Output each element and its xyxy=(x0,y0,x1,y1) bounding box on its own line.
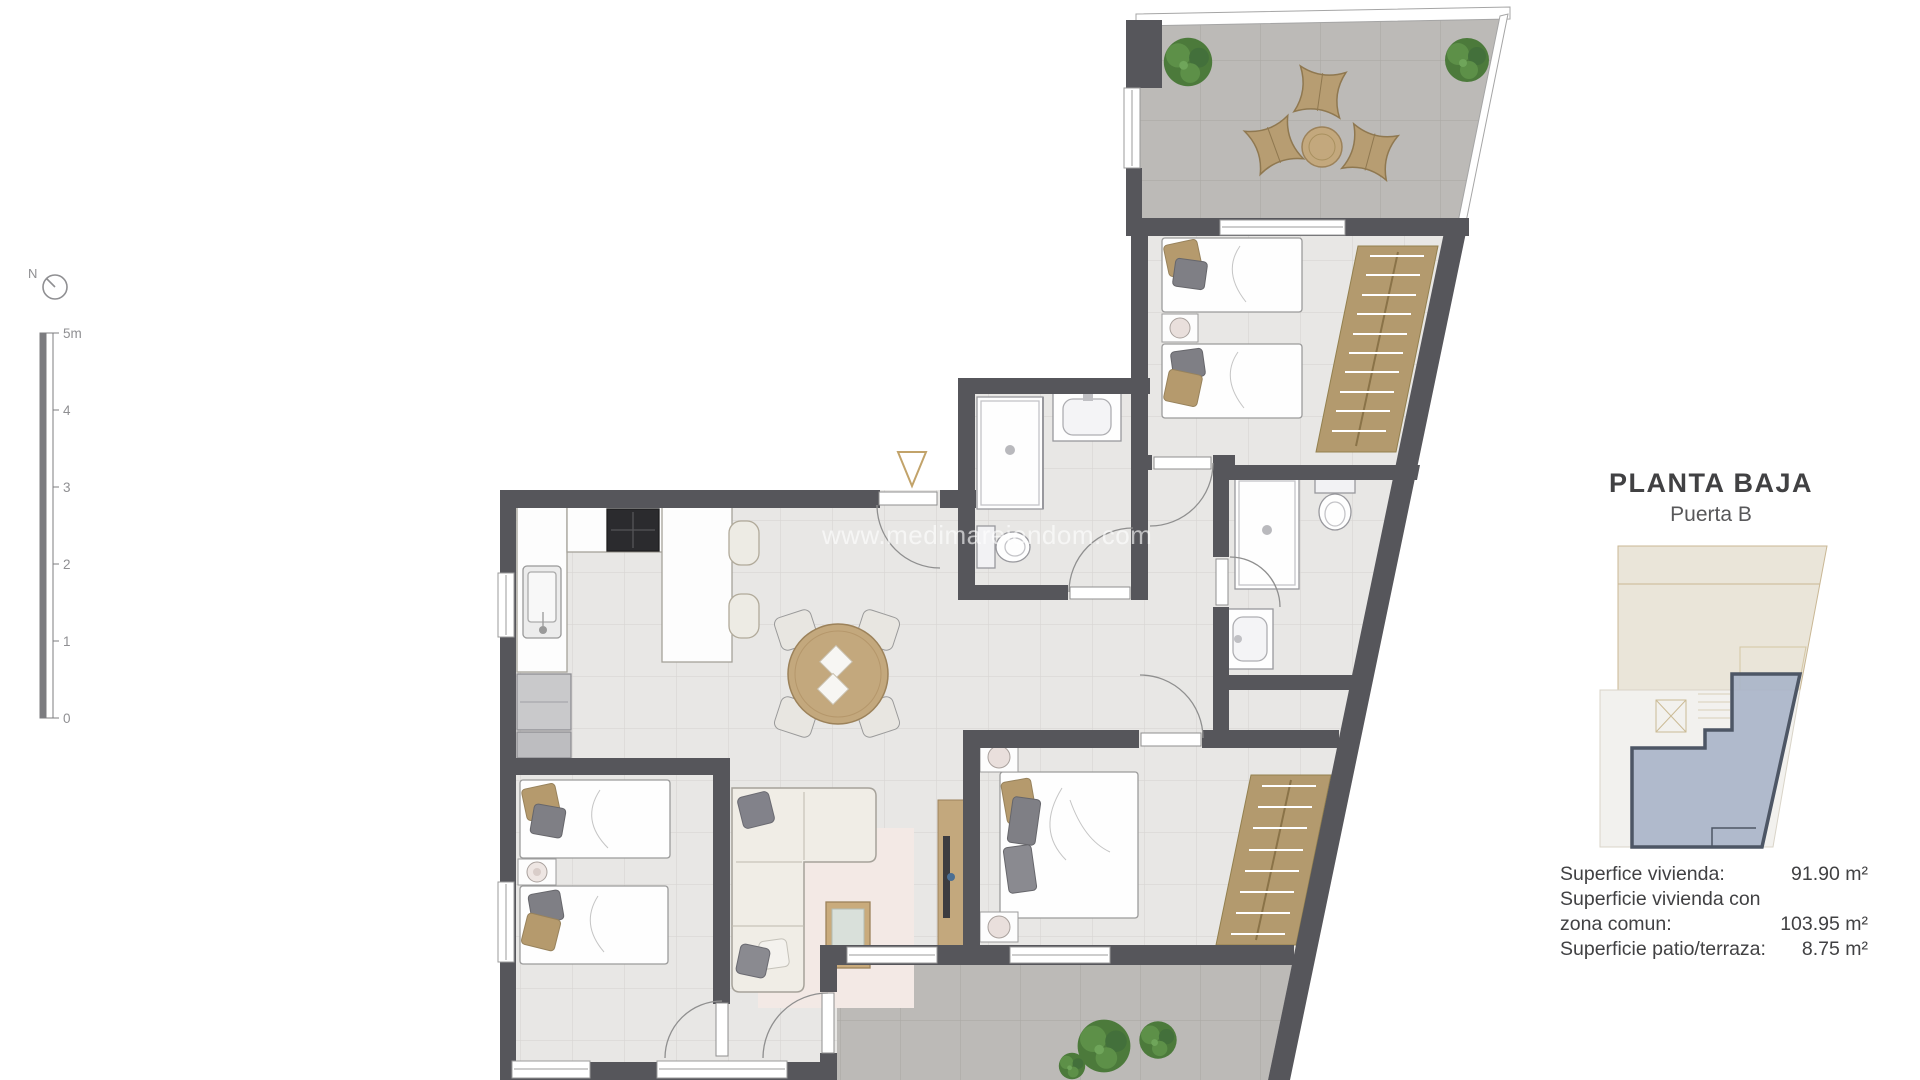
wall xyxy=(820,1053,837,1080)
faucet-icon xyxy=(539,626,547,634)
toilet xyxy=(977,526,995,568)
wall xyxy=(958,585,1068,600)
scale-label-5m: 5m xyxy=(63,326,82,341)
scale-label-0: 0 xyxy=(63,711,71,726)
area-value: 103.95 m² xyxy=(1780,912,1868,937)
wall xyxy=(820,950,837,992)
key-plan-building xyxy=(1618,546,1827,690)
area-label: Superficie vivienda con xyxy=(1560,887,1761,912)
kitchen-island xyxy=(662,506,732,662)
terrace xyxy=(1126,7,1510,222)
door-leaf xyxy=(1070,587,1130,599)
sofa-pillow xyxy=(735,943,771,979)
wall xyxy=(505,758,730,775)
terrace-chair xyxy=(1294,66,1346,118)
bar-stool xyxy=(729,521,759,565)
wall xyxy=(713,758,730,1004)
plan-title: PLANTA BAJA xyxy=(1556,468,1866,499)
pillow xyxy=(1007,796,1041,845)
area-row: zona comun: 103.95 m² xyxy=(1560,912,1868,937)
wall xyxy=(958,378,1150,394)
wall xyxy=(1213,675,1353,690)
terrace-planter-wall xyxy=(1126,20,1162,88)
plan-subtitle: Puerta B xyxy=(1556,503,1866,527)
lamp-icon xyxy=(988,916,1010,938)
door-leaf xyxy=(716,1003,728,1056)
door-leaf xyxy=(879,492,937,505)
wall xyxy=(1213,465,1229,557)
scale-label-1: 1 xyxy=(63,634,71,649)
door-leaf xyxy=(1154,457,1211,469)
patio-plant-icon xyxy=(1078,1020,1131,1073)
terrace-table xyxy=(1302,127,1342,167)
key-plan xyxy=(1600,546,1827,847)
wall xyxy=(963,730,980,965)
scale-bar: 5m 4 3 2 1 0 xyxy=(40,326,82,726)
scale-label-3: 3 xyxy=(63,480,71,495)
pillow xyxy=(1003,844,1037,893)
wall xyxy=(1213,465,1420,480)
area-label: zona comun: xyxy=(1560,912,1672,937)
wall xyxy=(1202,730,1339,748)
faucet-icon xyxy=(1083,393,1093,401)
compass-north-label: N xyxy=(28,266,37,281)
faucet-icon xyxy=(1234,635,1242,643)
wall xyxy=(500,490,880,508)
door-leaf xyxy=(1141,733,1201,746)
door-leaf xyxy=(822,993,834,1053)
bar-stool xyxy=(729,594,759,638)
scale-label-4: 4 xyxy=(63,403,71,418)
shower-drain-icon xyxy=(1005,445,1015,455)
wall xyxy=(963,730,1139,748)
sofa-pillow xyxy=(737,791,776,830)
area-label: Superficie patio/terraza: xyxy=(1560,937,1766,962)
pillow xyxy=(1172,258,1208,290)
oven xyxy=(517,732,571,758)
area-value: 91.90 m² xyxy=(1791,862,1868,887)
lamp-icon xyxy=(988,746,1010,768)
patio-plant-icon xyxy=(1059,1053,1085,1079)
area-label: Superfice vivienda: xyxy=(1560,862,1725,887)
terrace-plant-icon xyxy=(1445,38,1489,82)
pillow xyxy=(1163,369,1203,407)
area-row: Superficie patio/terraza: 8.75 m² xyxy=(1560,937,1868,962)
door-leaf xyxy=(1216,559,1228,605)
wall xyxy=(958,378,975,600)
area-summary: Superfice vivienda: 91.90 m² Superficie … xyxy=(1560,862,1868,962)
pillow xyxy=(530,803,567,838)
terrace-plant-icon xyxy=(1164,38,1212,86)
area-row: Superficie vivienda con xyxy=(1560,887,1868,912)
area-row: Superfice vivienda: 91.90 m² xyxy=(1560,862,1868,887)
wall xyxy=(1131,455,1152,470)
shower-drain-icon xyxy=(1262,525,1272,535)
patio-plant-icon xyxy=(1139,1021,1176,1058)
area-value: 8.75 m² xyxy=(1802,937,1868,962)
wall xyxy=(1131,236,1148,600)
scale-label-2: 2 xyxy=(63,557,71,572)
compass-icon: N xyxy=(28,266,67,299)
lamp-icon xyxy=(1170,318,1190,338)
dining-area xyxy=(773,608,902,739)
entrance-marker-icon xyxy=(898,452,926,486)
wall xyxy=(1126,168,1142,222)
